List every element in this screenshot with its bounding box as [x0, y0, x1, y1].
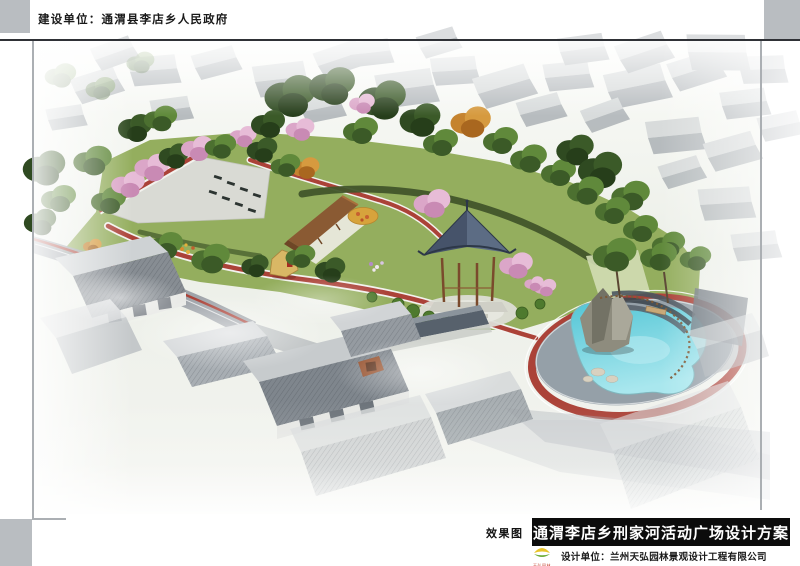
figure-type-label: 效果图: [486, 525, 524, 541]
logo-leaf-icon: [532, 545, 552, 558]
frame-corner-bottom-left: [0, 519, 32, 566]
frame-corner-top-right: [764, 0, 800, 39]
fade-bottom: [33, 400, 762, 518]
project-title-bar: 通渭李店乡刑家河活动广场设计方案: [532, 518, 790, 546]
frame-rule-top: [0, 39, 800, 41]
frame-corner-top-left: [0, 0, 30, 33]
construction-unit-label: 建设单位：通渭县李店乡人民政府: [38, 11, 229, 27]
fade-top: [33, 41, 762, 116]
frame-rule-right: [760, 41, 762, 510]
frame-rule-left: [32, 41, 34, 519]
rendering-perspective-view: [0, 0, 800, 566]
design-unit-row: 天弘园林 设计单位：兰州天弘园林景观设计工程有限公司: [530, 545, 767, 566]
design-company-logo: 天弘园林: [530, 545, 554, 566]
frame-tick-bottom-left: [32, 518, 66, 520]
design-board-page: 建设单位：通渭县李店乡人民政府 效果图 通渭李店乡刑家河活动广场设计方案 天弘园…: [0, 0, 800, 566]
project-title: 通渭李店乡刑家河活动广场设计方案: [533, 522, 789, 543]
flower-mound: [348, 208, 378, 225]
design-unit-label: 设计单位：兰州天弘园林景观设计工程有限公司: [561, 549, 767, 563]
